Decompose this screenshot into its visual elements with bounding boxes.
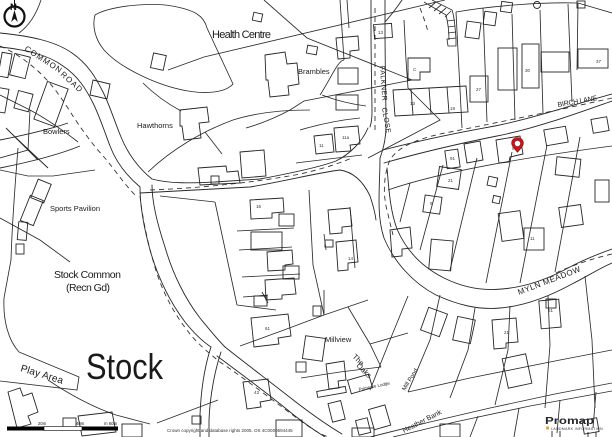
svg-text:91: 91: [450, 156, 456, 161]
svg-text:40m: 40m: [76, 421, 85, 426]
svg-text:Hawthorns: Hawthorns: [137, 121, 173, 130]
svg-text:Sports Pavilion: Sports Pavilion: [50, 204, 100, 213]
svg-text:13: 13: [378, 30, 384, 35]
svg-text:11a: 11a: [342, 135, 350, 140]
svg-text:Promap: Promap: [545, 415, 594, 427]
svg-text:19: 19: [450, 106, 456, 111]
svg-text:14: 14: [348, 256, 354, 261]
svg-text:Stock Common: Stock Common: [54, 269, 121, 281]
svg-text:Health Centre: Health Centre: [212, 29, 271, 41]
svg-text:61: 61: [548, 308, 554, 313]
svg-text:37: 37: [596, 59, 602, 64]
svg-text:m 60m: m 60m: [104, 421, 118, 426]
svg-text:11: 11: [319, 143, 324, 148]
svg-text:43: 43: [254, 390, 260, 395]
svg-text:20m: 20m: [38, 421, 47, 426]
svg-text:11: 11: [530, 236, 535, 241]
svg-text:LANDMARK INFORMATION: LANDMARK INFORMATION: [551, 427, 603, 431]
svg-text:27: 27: [476, 87, 482, 92]
svg-text:N: N: [10, 2, 17, 13]
svg-text:Crown copyright and database r: Crown copyright and database rights 2005…: [167, 428, 293, 433]
svg-text:Bowlers: Bowlers: [43, 127, 70, 136]
svg-text:13: 13: [410, 101, 416, 106]
svg-text:(Recn Gd): (Recn Gd): [66, 282, 110, 294]
svg-text:61: 61: [265, 326, 271, 331]
svg-text:30: 30: [525, 68, 531, 73]
svg-text:16: 16: [256, 204, 262, 209]
svg-text:Brambles: Brambles: [298, 67, 330, 76]
svg-text:21: 21: [504, 330, 510, 335]
svg-text:Stock: Stock: [86, 346, 164, 387]
svg-text:Millview: Millview: [325, 335, 352, 344]
svg-text:21: 21: [448, 178, 454, 183]
